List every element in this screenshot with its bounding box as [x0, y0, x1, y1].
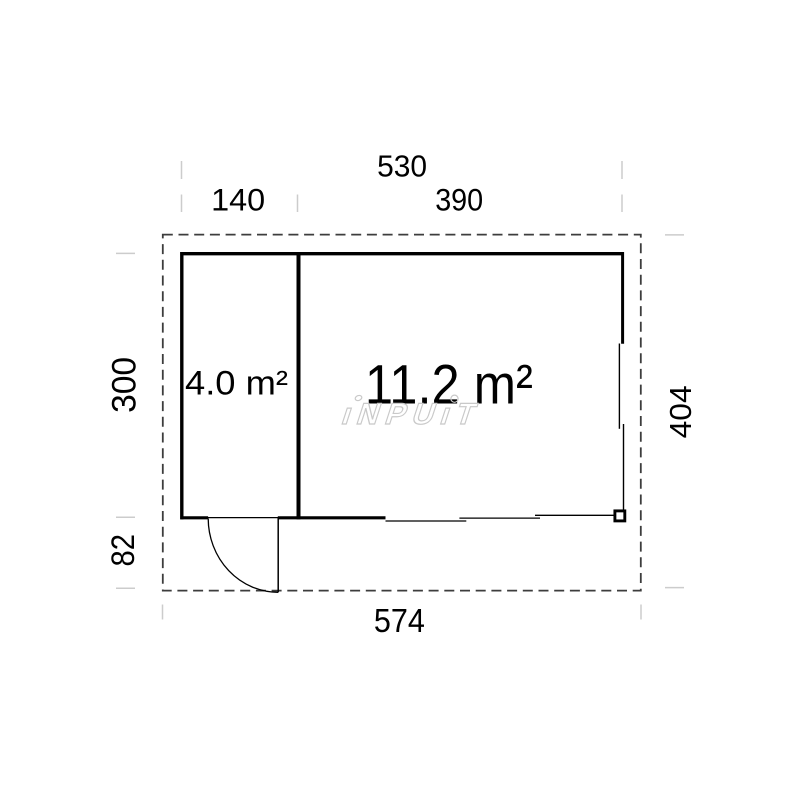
- svg-text:390: 390: [435, 182, 483, 218]
- svg-text:4.0 m²: 4.0 m²: [185, 365, 288, 403]
- svg-text:574: 574: [374, 603, 425, 640]
- svg-text:82: 82: [105, 534, 141, 567]
- svg-text:530: 530: [377, 149, 427, 184]
- svg-text:140: 140: [211, 182, 265, 218]
- svg-text:ıNPUıT: ıNPUıT: [338, 397, 488, 431]
- svg-text:300: 300: [106, 357, 144, 413]
- svg-text:404: 404: [665, 385, 698, 438]
